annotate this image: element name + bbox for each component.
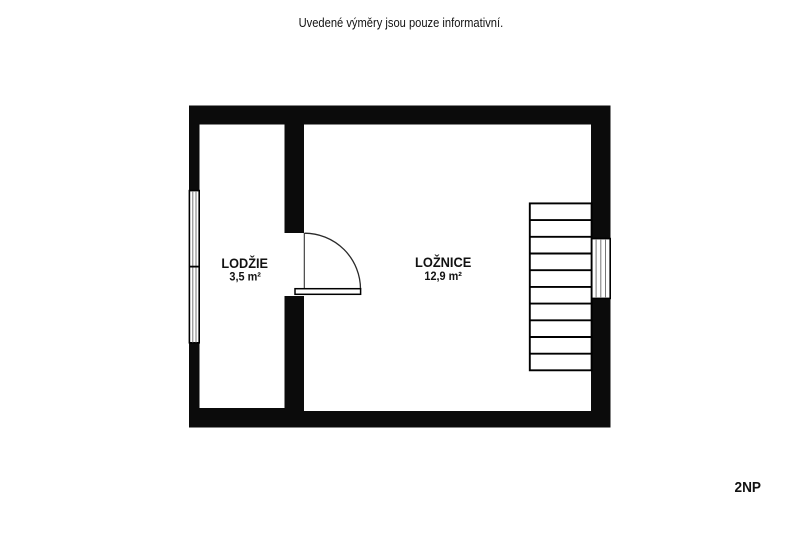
svg-text:12,9 m²: 12,9 m² — [424, 269, 462, 283]
svg-text:Uvedené výměry jsou pouze info: Uvedené výměry jsou pouze informativní. — [299, 15, 504, 30]
svg-text:2NP: 2NP — [735, 480, 762, 496]
svg-text:3,5 m²: 3,5 m² — [229, 269, 261, 283]
